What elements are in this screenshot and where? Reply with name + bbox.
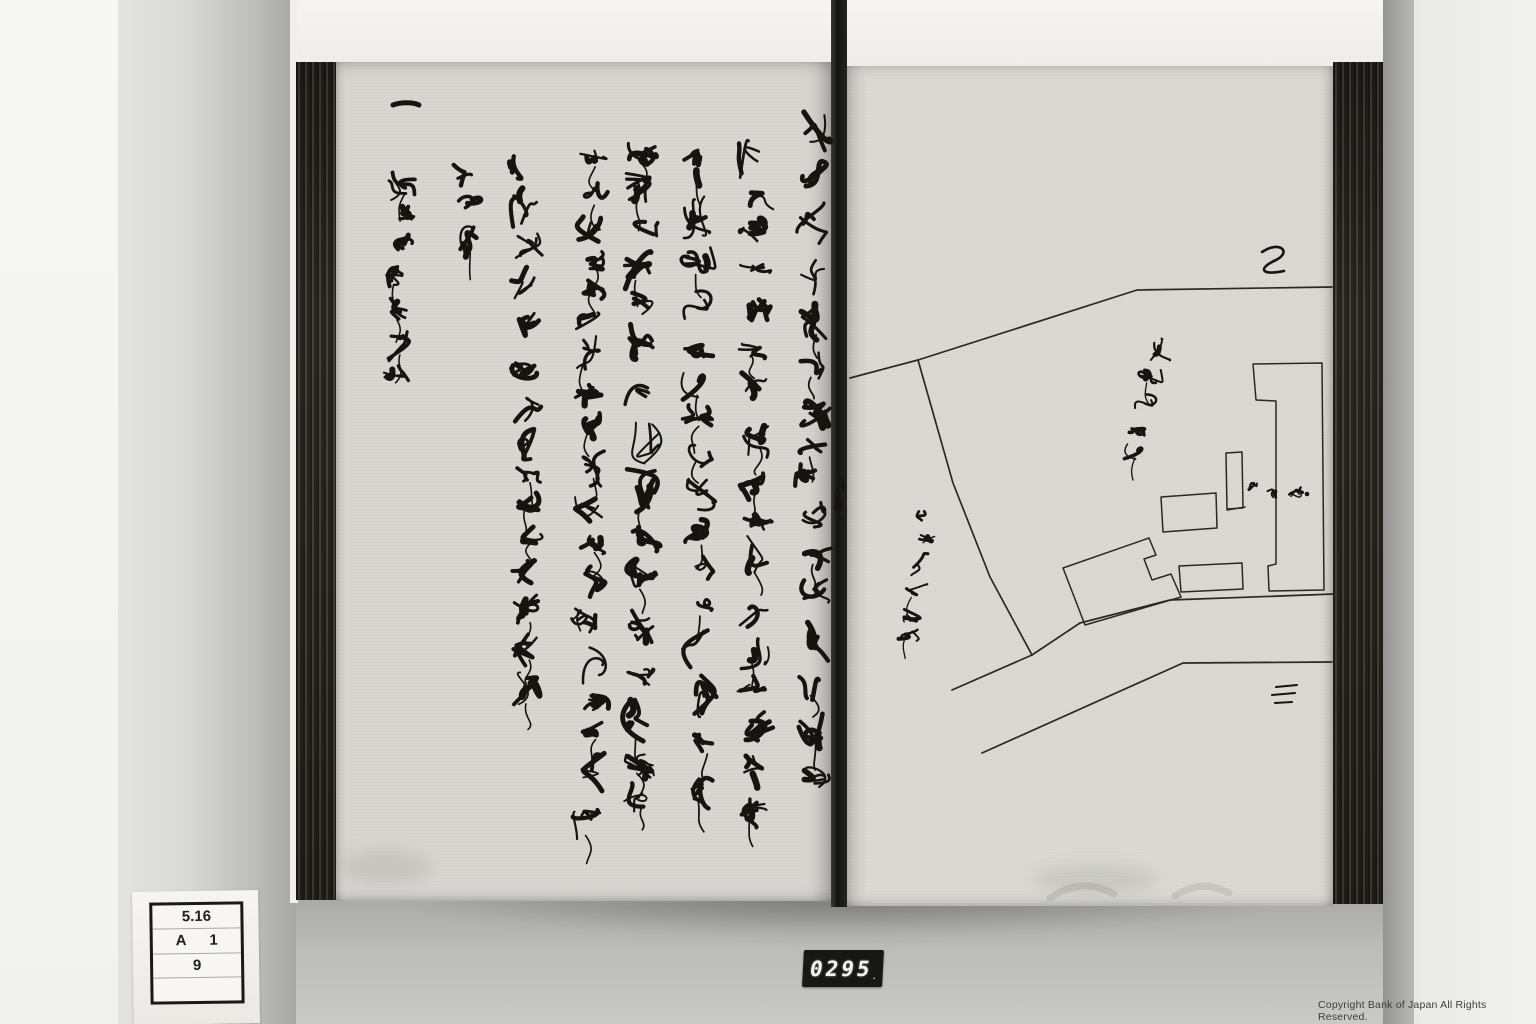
backdrop-left-white-band — [0, 0, 118, 1024]
paper-stain — [1035, 865, 1155, 895]
left-manuscript-page — [336, 62, 831, 901]
label-card-cell: 9 — [193, 957, 202, 974]
label-card-table: 5.16A19 — [149, 901, 244, 1004]
label-card-row: 5.16 — [152, 904, 240, 928]
counter-dot: . — [872, 968, 876, 987]
label-card-row — [153, 976, 241, 1001]
counter-digits: 0295 — [807, 957, 874, 981]
paper-stain — [340, 850, 430, 884]
label-card-row: A1 — [153, 928, 241, 953]
photograph-of-book-spread: 5.16A19 0295 . Copyright Bank of Japan A… — [0, 0, 1536, 1024]
right-manuscript-page — [847, 66, 1333, 906]
label-card-cell: A — [176, 933, 187, 950]
label-card-cell: 1 — [209, 932, 218, 949]
frame-counter: 0295 . — [802, 950, 884, 987]
label-card-row: 9 — [153, 952, 241, 977]
backdrop-right-gray-strip — [1383, 0, 1414, 1024]
right-stitched-binding-edge — [1333, 62, 1383, 904]
backdrop-right-light-band — [1414, 0, 1536, 1024]
archive-label-card: 5.16A19 — [132, 890, 260, 1024]
label-card-cell: 5.16 — [182, 908, 211, 925]
left-stitched-binding-edge — [296, 62, 336, 900]
copyright-notice: Copyright Bank of Japan All Rights Reser… — [1318, 999, 1530, 1023]
book-gutter — [831, 0, 847, 907]
backdrop-left-gradient — [118, 0, 296, 1024]
